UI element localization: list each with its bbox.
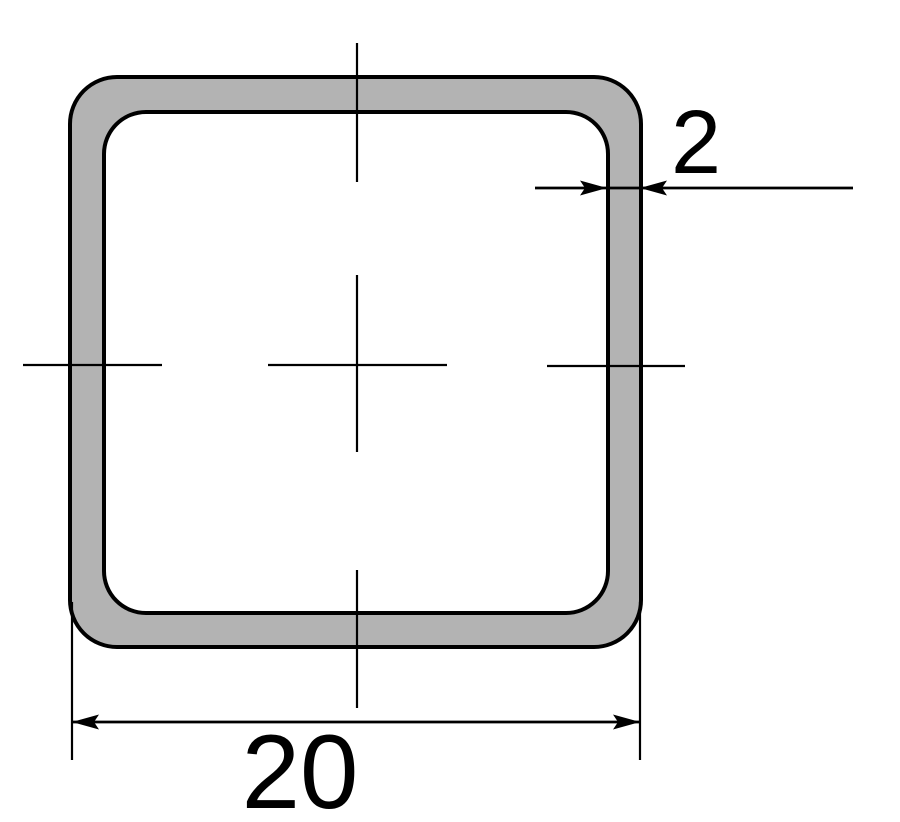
width-value-label: 20 — [242, 714, 359, 822]
diagram-canvas: 2 20 — [0, 0, 900, 822]
thickness-value-label: 2 — [671, 93, 721, 193]
square-tube-cross-section-diagram: 2 20 — [0, 0, 900, 822]
